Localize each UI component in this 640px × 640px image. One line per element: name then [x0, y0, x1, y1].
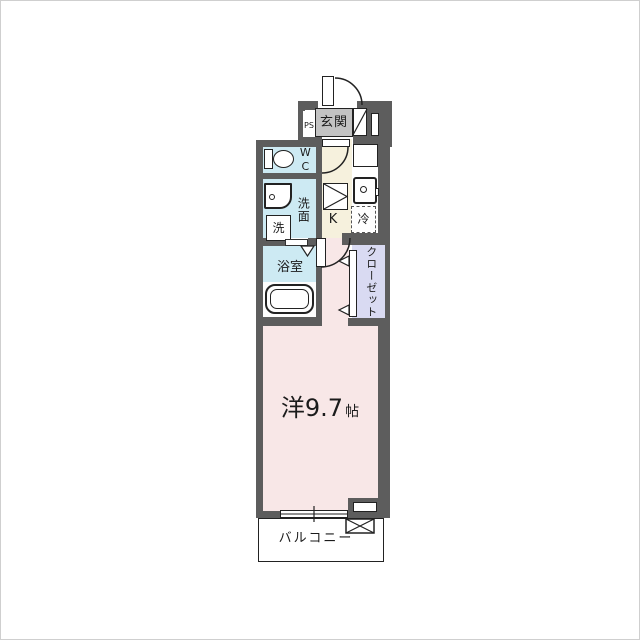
wall: [256, 317, 322, 326]
refrigerator-label: 冷: [351, 206, 376, 233]
laundry-label: 洗: [266, 215, 291, 241]
small-window-icon: [353, 502, 377, 512]
floor-plan: PS 玄関 WC 洗面 洗 K 冷 浴室 クローゼット 洋9.7帖 バルコニー: [0, 0, 640, 640]
entrance-window-icon: [371, 113, 379, 136]
sliding-window-icon: [280, 510, 348, 518]
wall: [378, 140, 390, 245]
balcony-label: バルコニー: [266, 530, 366, 547]
stove-icon: [323, 183, 348, 210]
western-room-unit: 帖: [345, 405, 359, 420]
wc-label: WC: [295, 145, 315, 175]
wall: [353, 136, 367, 144]
toilet-bowl-icon: [273, 150, 294, 168]
entrance-door-leaf-icon: [322, 76, 334, 106]
wall: [308, 238, 316, 246]
kitchen-faucet-icon: [375, 188, 379, 196]
entrance-label: 玄関: [315, 108, 353, 137]
shoe-cabinet-icon: [353, 108, 367, 136]
bathroom-label: 浴室: [270, 259, 310, 276]
kitchen-label: K: [325, 211, 341, 229]
wall: [263, 511, 280, 518]
wc-door-leaf-icon: [322, 139, 350, 147]
main-room-corridor: [322, 238, 349, 326]
closet-door-icon: [349, 250, 357, 317]
bathtub-inner-icon: [270, 289, 309, 309]
kitchen-counter-icon: [353, 144, 378, 167]
washroom-label: 洗面: [294, 191, 312, 229]
wall: [256, 140, 263, 518]
room-door-leaf-icon: [316, 238, 326, 267]
wall: [316, 142, 322, 326]
toilet-tank-icon: [264, 149, 273, 169]
wall: [385, 245, 390, 318]
closet-label: クローゼット: [362, 246, 380, 317]
washbasin-drain-icon: [269, 194, 275, 200]
western-room-label: 洋9.7帖: [257, 396, 383, 428]
western-room-size: 洋9.7: [281, 396, 343, 421]
kitchen-sink-drain-icon: [360, 186, 367, 193]
